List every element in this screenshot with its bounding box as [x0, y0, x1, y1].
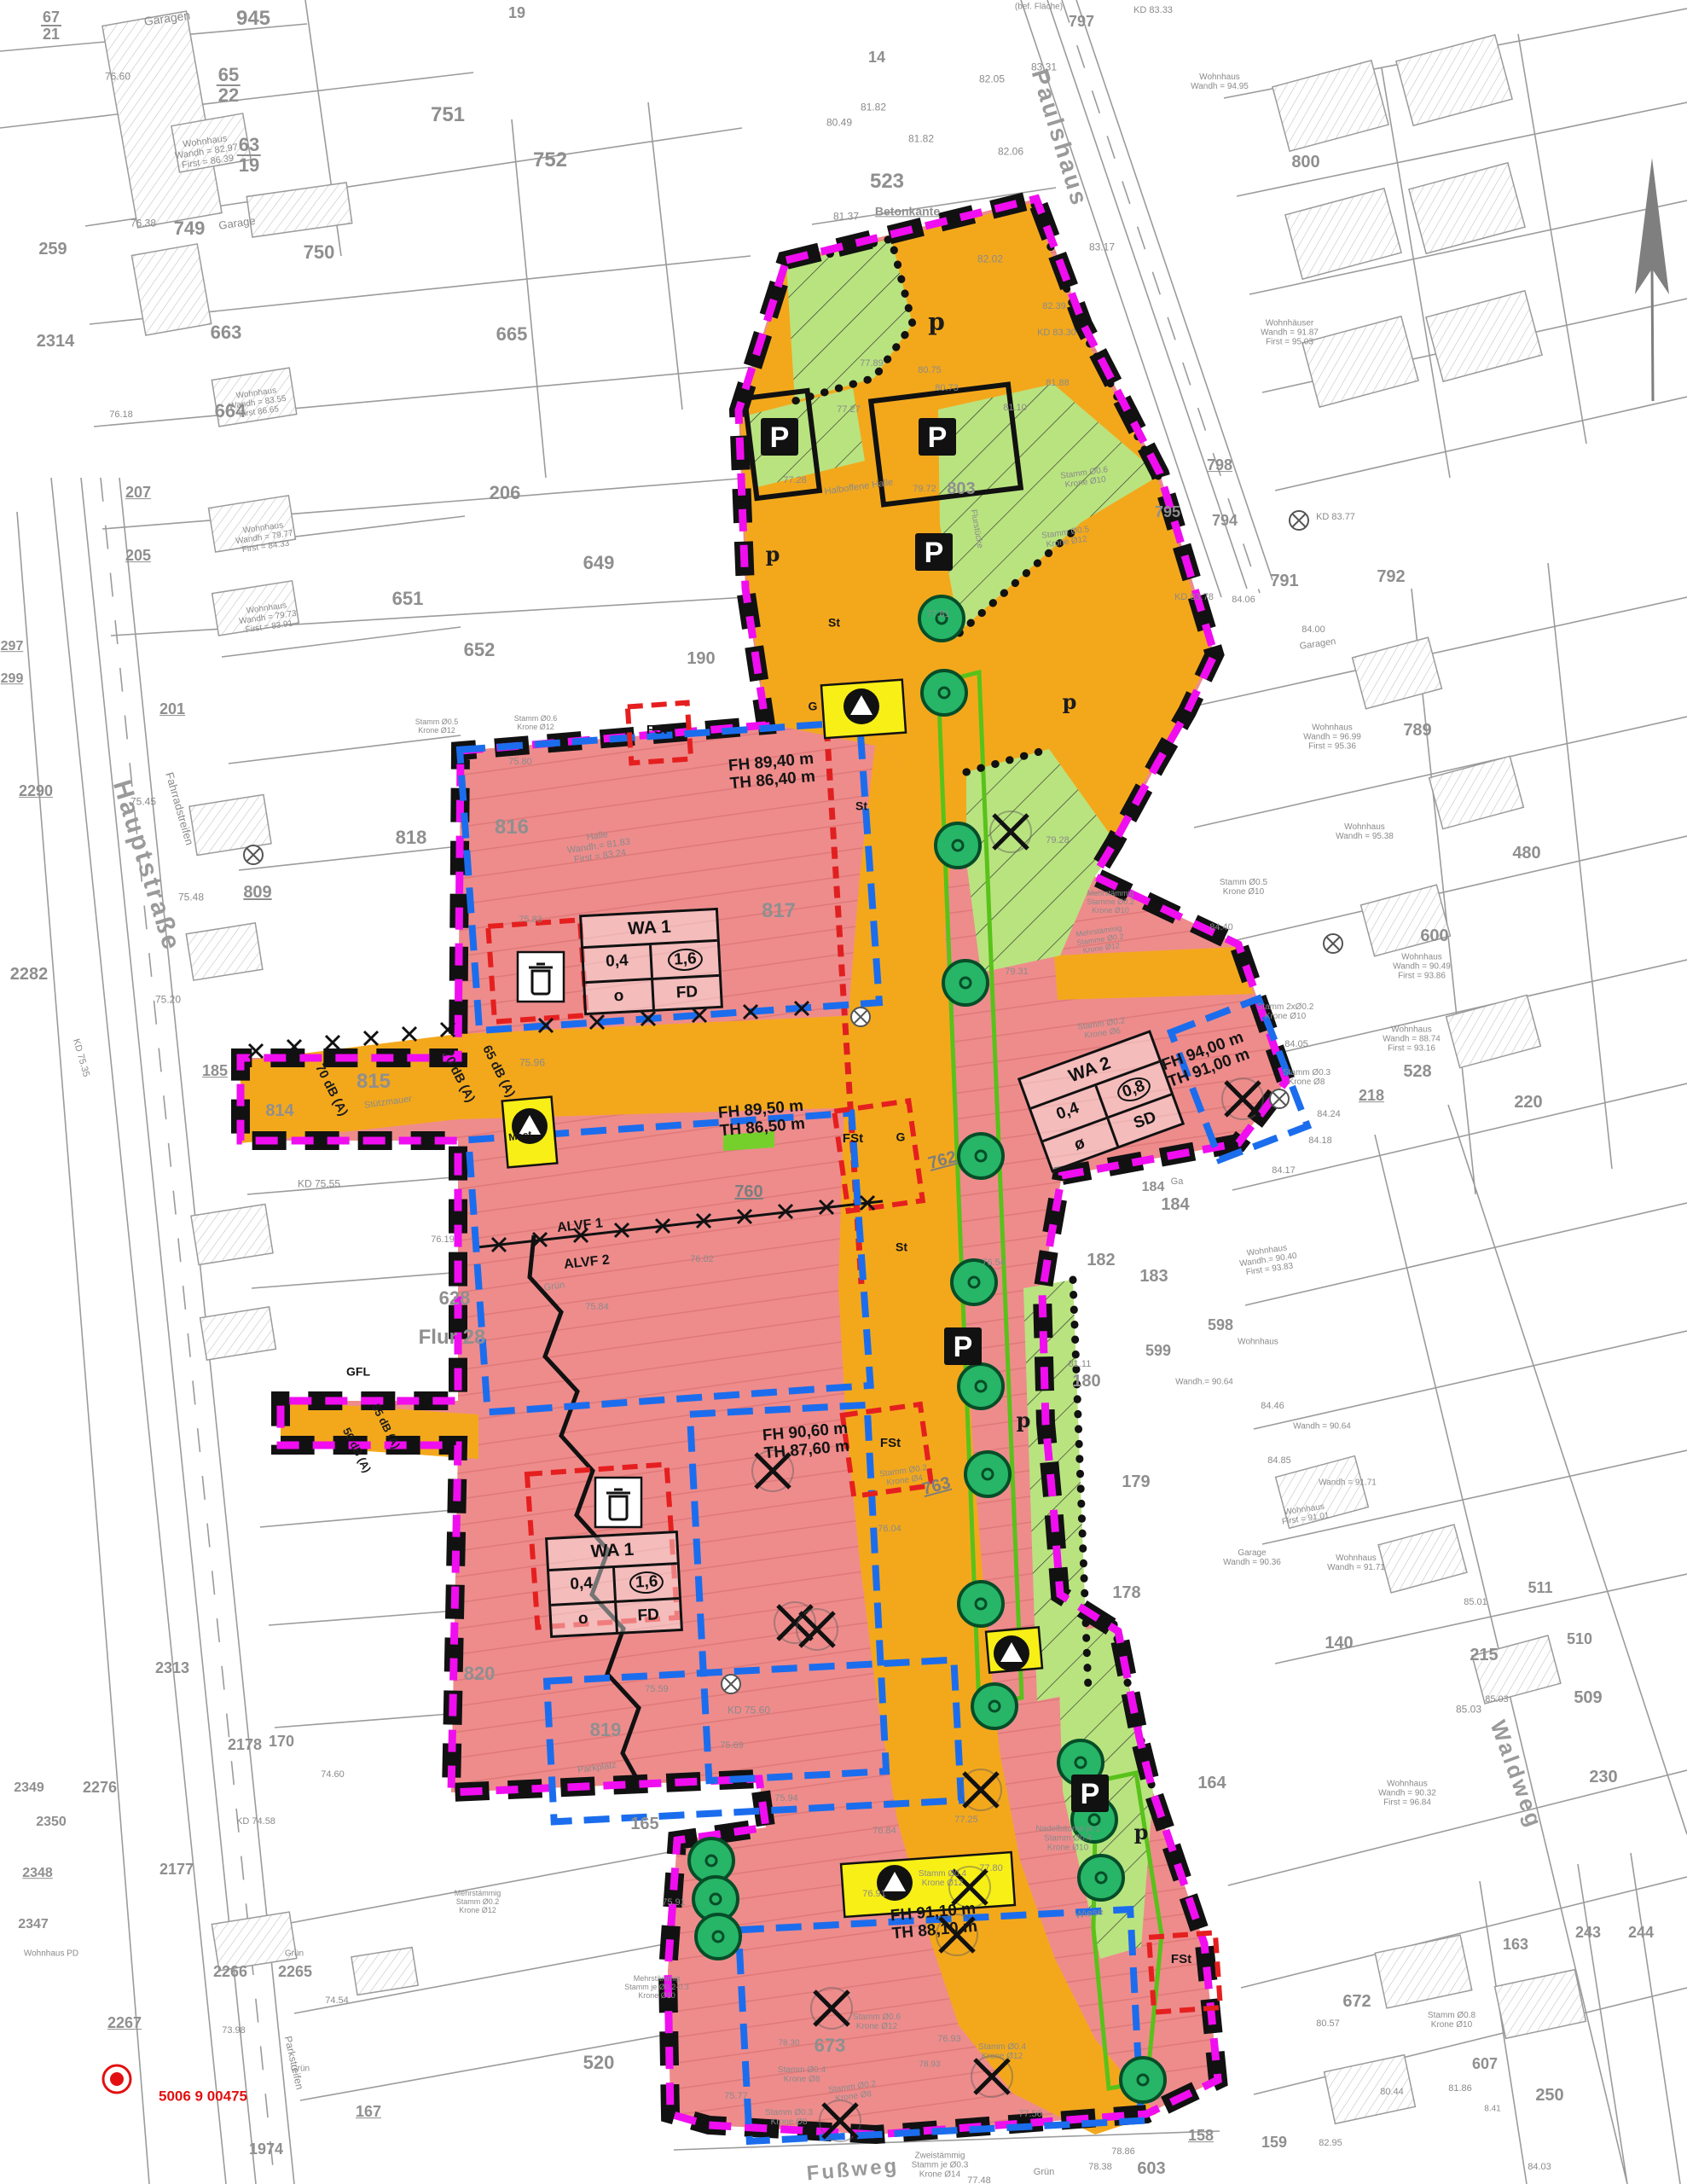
tree-icon [952, 1260, 996, 1304]
tree-icon [922, 671, 966, 715]
zone-gfz: 1,6 [629, 1571, 664, 1594]
boundary-x-mark [364, 1031, 378, 1045]
zone-bauweise: o [551, 1603, 615, 1635]
zone-grz: 0,4 [583, 945, 651, 981]
tree-icon [1079, 1856, 1123, 1900]
map-canvas: PPPPP [0, 0, 1687, 2184]
tree-icon [696, 1914, 740, 1959]
tree-icon [919, 596, 964, 641]
parking-sign-letter: P [954, 1331, 973, 1363]
tree-icon [959, 1582, 1003, 1626]
north-arrow-icon [1635, 158, 1669, 401]
zone-grz: 0,4 [549, 1568, 613, 1604]
tree-icon [972, 1684, 1017, 1728]
tree-icon [1121, 2058, 1165, 2102]
tree-icon [959, 1134, 1003, 1178]
zone-table-wa1-north: WA 1 0,4 1,6 o FD [579, 908, 723, 1015]
tree-icon [959, 1364, 1003, 1409]
zone-bauweise: o [585, 980, 652, 1013]
survey-marker-red-dot [110, 2072, 124, 2086]
tree-icon [965, 1452, 1010, 1496]
parking-sign-letter: P [1081, 1778, 1100, 1810]
parking-sign-letter: P [928, 421, 948, 454]
zone-dachform: FD [614, 1600, 681, 1632]
parking-sign-letter: P [925, 537, 944, 569]
bebauungsplan-map: PPPPP WA 1 0,4 1,6 o FD WA 1 0,4 1,6 o F… [0, 0, 1687, 2184]
tree-icon [936, 823, 980, 868]
zone-gfz: 1,6 [668, 948, 704, 972]
zone-dachform: FD [651, 977, 721, 1009]
boundary-x-mark [326, 1036, 339, 1049]
zone-gfz: 0,8 [1114, 1073, 1154, 1106]
zone-table-wa1-south: WA 1 0,4 1,6 o FD [545, 1531, 683, 1638]
tree-icon [943, 961, 988, 1005]
parking-sign-letter: P [770, 421, 790, 454]
boundary-x-mark [403, 1027, 416, 1041]
green-sliver [723, 1131, 774, 1151]
